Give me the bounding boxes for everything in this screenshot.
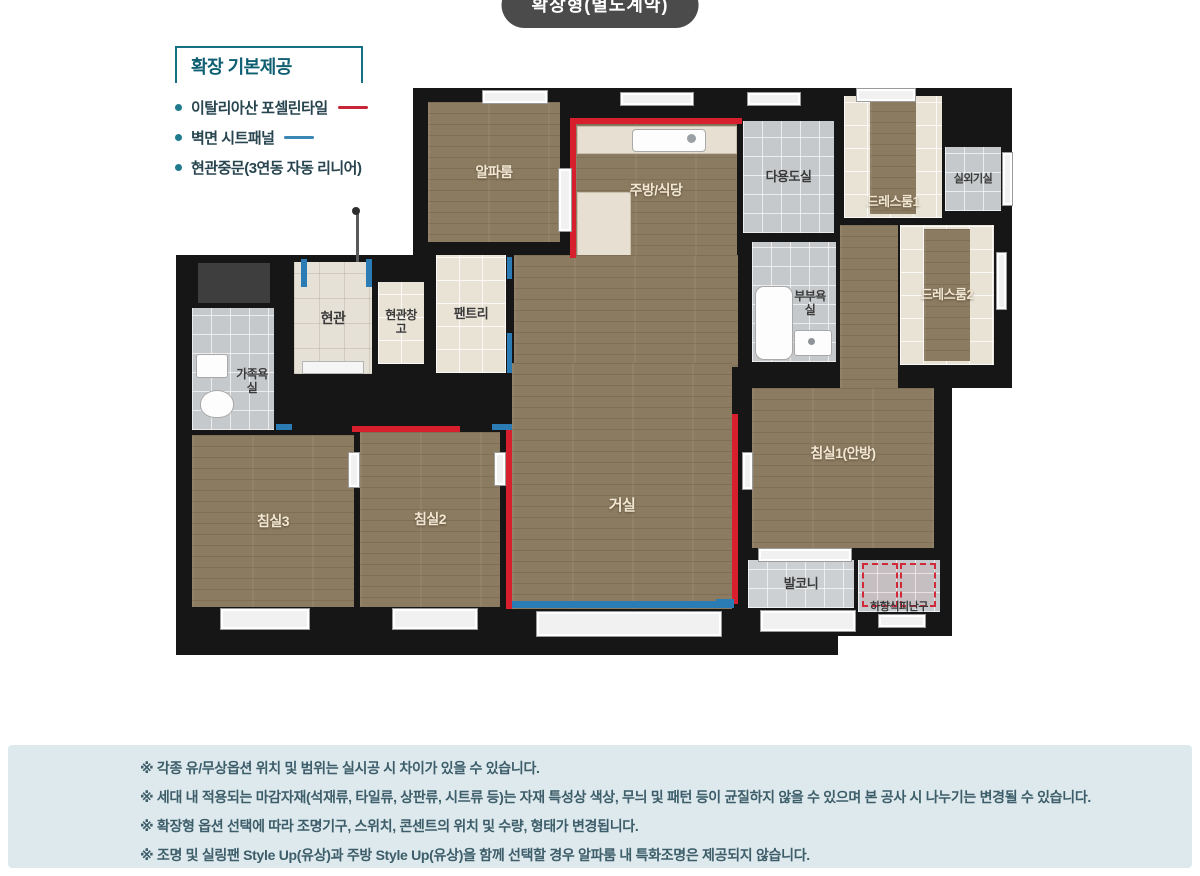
room-bedroom2: 침실2 <box>360 432 500 607</box>
room-escape-hatch: 하향식피난구 <box>858 560 940 612</box>
entrance-door <box>302 361 364 374</box>
window <box>1002 152 1013 206</box>
room-label: 알파룸 <box>475 164 512 180</box>
porcelain-tile-line <box>506 427 512 609</box>
room-label: 거실 <box>609 497 636 514</box>
disclaimer-line: ※ 각종 유/무상옵션 위치 및 범위는 실시공 시 차이가 있을 수 있습니다… <box>140 758 1172 778</box>
sheet-panel-line <box>512 601 734 608</box>
bathtub <box>755 286 793 360</box>
room-label: 하향식피난구 <box>850 601 948 614</box>
window <box>878 614 926 628</box>
bathroom-sink <box>196 354 228 378</box>
window <box>620 92 694 106</box>
sheet-panel-line <box>492 424 512 430</box>
sheet-panel-line <box>276 424 292 430</box>
toilet <box>200 390 234 418</box>
room-master-bath: 부부욕실 <box>752 242 836 362</box>
door <box>558 168 572 232</box>
sheet-panel-line <box>301 259 307 287</box>
door <box>494 452 506 486</box>
disclaimer-box: ※ 각종 유/무상옵션 위치 및 범위는 실시공 시 차이가 있을 수 있습니다… <box>8 745 1192 868</box>
room-label: 침실2 <box>414 511 446 527</box>
room-alpha: 알파룸 <box>428 102 560 242</box>
room-utility: 다용도실 <box>743 121 834 233</box>
window <box>536 611 722 637</box>
window <box>482 90 548 104</box>
vent-pipe-cap <box>352 207 360 215</box>
hallway <box>514 255 738 367</box>
window <box>996 252 1007 310</box>
room-label: 가족욕실 <box>236 368 268 396</box>
disclaimer-line: ※ 세대 내 적용되는 마감자재(석재류, 타일류, 상판류, 시트류 등)는 … <box>140 787 1172 807</box>
floor-plan: 알파룸 주방/식당 다용도실 드레스룸1 실외기실 팬트리 현관 현관창고 <box>0 0 1200 700</box>
room-bedroom1: 침실1(안방) <box>752 388 934 548</box>
room-label: 현관 <box>321 310 346 326</box>
room-balcony: 발코니 <box>748 560 854 608</box>
room-label: 부부욕실 <box>794 290 826 318</box>
window <box>392 608 478 630</box>
disclaimer-line: ※ 조명 및 실링팬 Style Up(유상)과 주방 Style Up(유상)… <box>140 845 1172 865</box>
disclaimer-line: ※ 확장형 옵션 선택에 따라 조명기구, 스위치, 콘센트의 위치 및 수량,… <box>140 816 1172 836</box>
room-living: 거실 <box>512 363 732 609</box>
window <box>760 610 856 632</box>
room-outdoor-unit: 실외기실 <box>945 147 1001 211</box>
room-dress2: 드레스룸2 <box>900 225 994 365</box>
sheet-panel-line <box>366 259 372 287</box>
room-label: 주방/식당 <box>575 182 737 198</box>
window <box>220 608 310 630</box>
porcelain-tile-line <box>732 414 738 604</box>
sheet-panel-line <box>507 333 512 373</box>
room-label: 현관창고 <box>384 309 418 337</box>
door <box>348 452 360 488</box>
window <box>758 548 852 562</box>
room-dress1: 드레스룸1 <box>844 96 942 218</box>
room-family-bath: 가족욕실 <box>192 308 274 430</box>
room-label: 침실3 <box>257 513 289 529</box>
window <box>856 88 916 102</box>
duct-shaft <box>198 263 270 303</box>
window <box>747 92 801 106</box>
room-label: 발코니 <box>784 577 818 592</box>
faucet-icon <box>687 134 696 143</box>
sheet-panel-line <box>716 599 734 607</box>
floorplan-page: 확장형(별도계약) 확장 기본제공 이탈리아산 포셀린타일 벽면 시트패널 현관… <box>0 0 1200 876</box>
vent-pipe <box>356 214 359 262</box>
room-label: 팬트리 <box>454 307 488 322</box>
corridor-master <box>840 225 898 390</box>
room-kitchen-dining: 주방/식당 <box>575 124 737 256</box>
room-entrance-storage: 현관창고 <box>378 282 424 364</box>
room-label: 드레스룸2 <box>921 288 974 303</box>
porcelain-tile-line <box>352 426 460 432</box>
room-label: 다용도실 <box>766 170 812 185</box>
drain-icon <box>808 338 815 345</box>
sheet-panel-line <box>507 257 512 279</box>
porcelain-tile-line <box>570 118 742 124</box>
kitchen-counter <box>577 192 631 256</box>
room-pantry: 팬트리 <box>436 255 506 373</box>
room-label: 드레스룸1 <box>844 195 942 210</box>
room-label: 침실1(안방) <box>810 445 875 461</box>
room-label: 실외기실 <box>954 173 992 186</box>
door <box>742 452 753 490</box>
room-bedroom3: 침실3 <box>192 435 354 607</box>
